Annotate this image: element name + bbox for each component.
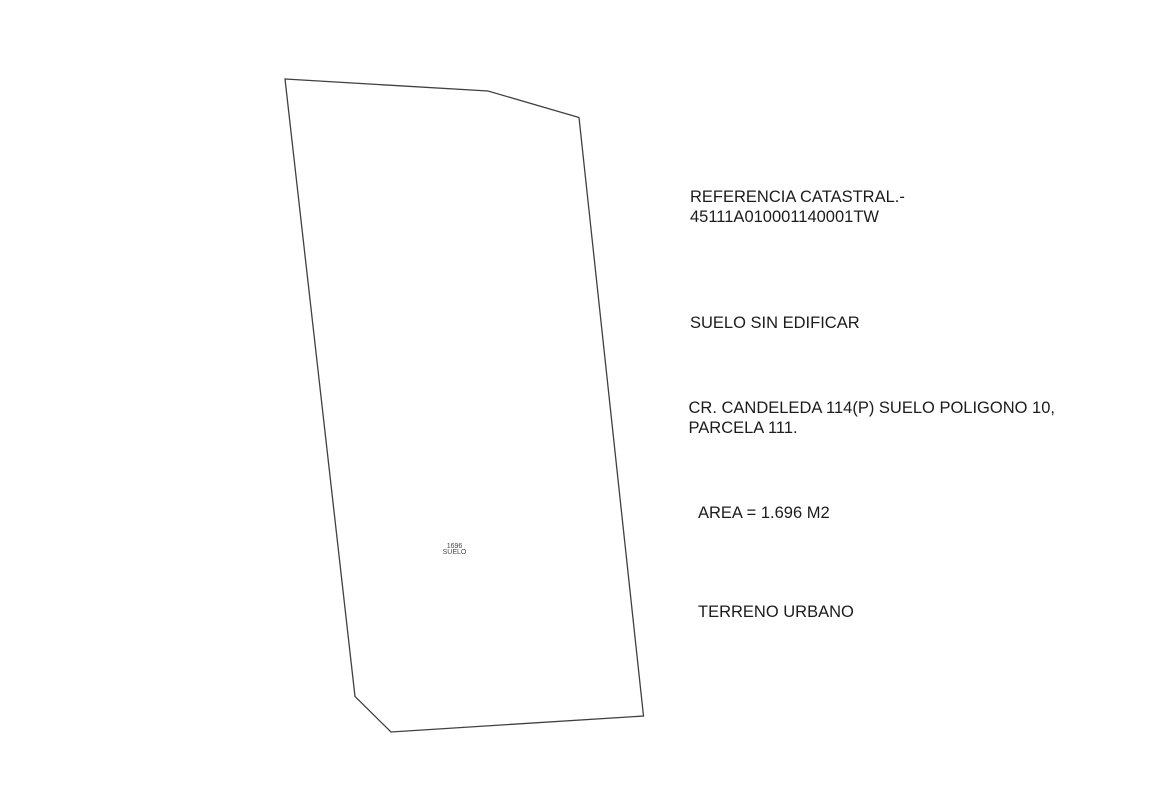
svg-text:SUELO: SUELO <box>443 549 467 556</box>
